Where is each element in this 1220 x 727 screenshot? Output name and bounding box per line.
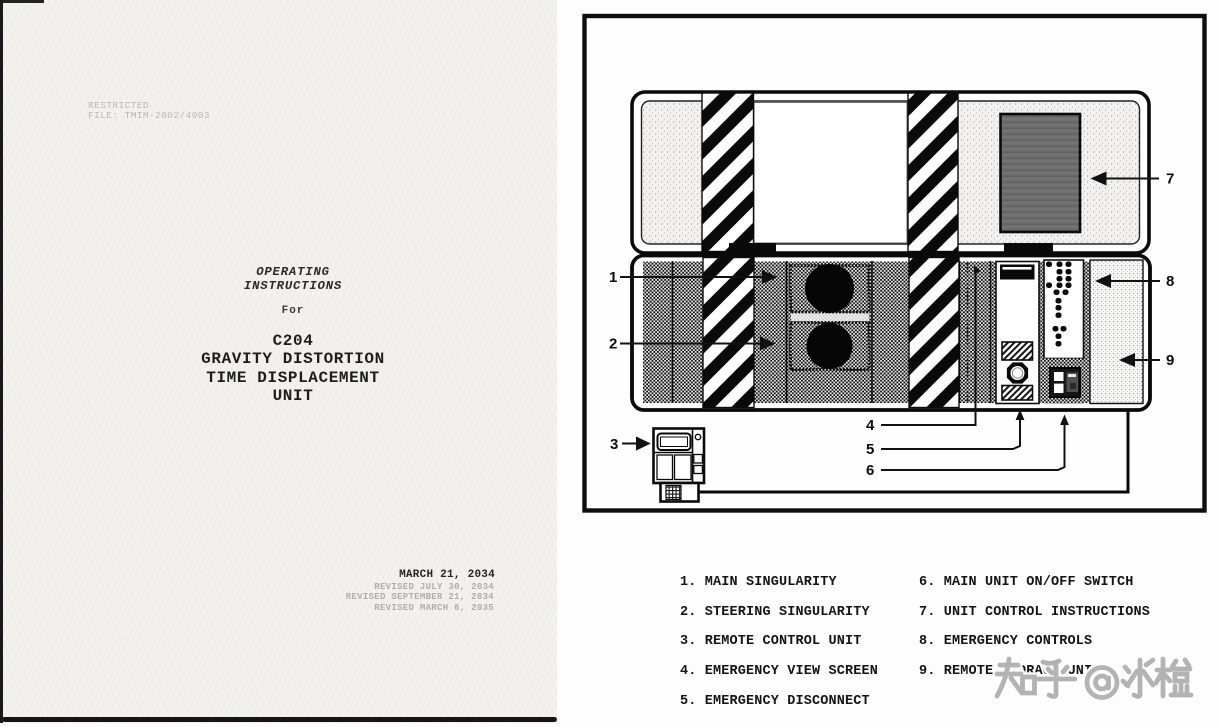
svg-text:9: 9 [1166, 352, 1174, 369]
svg-text:7: 7 [1166, 171, 1174, 188]
svg-text:6: 6 [866, 462, 874, 479]
svg-text:3: 3 [610, 436, 618, 453]
svg-text:2: 2 [609, 336, 617, 353]
svg-text:5: 5 [866, 441, 874, 458]
svg-text:4: 4 [866, 417, 875, 434]
svg-text:8: 8 [1166, 273, 1174, 290]
svg-text:1: 1 [609, 269, 617, 286]
